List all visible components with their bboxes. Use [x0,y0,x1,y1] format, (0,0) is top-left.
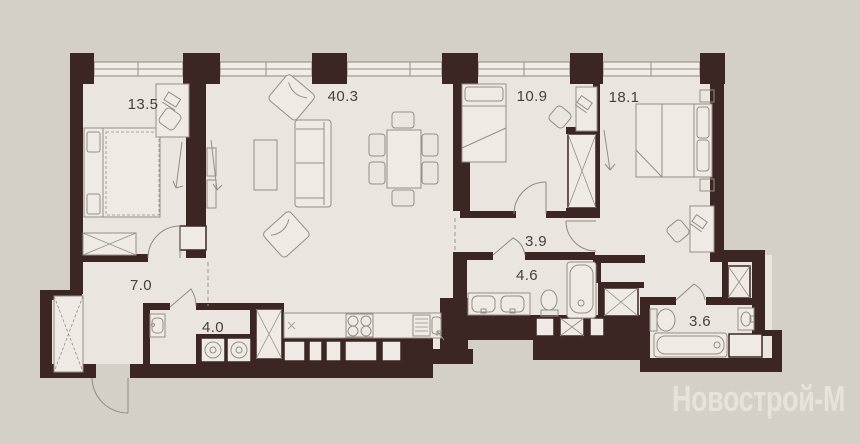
duct-shaft [590,318,604,336]
kitchen-counter-icon [284,313,444,340]
room-area-label-bedroom2: 10.9 [517,88,548,105]
hallway-furniture [54,296,83,372]
double-bed-icon [84,128,160,217]
entry-door-swing [92,378,128,413]
window [220,62,312,76]
room-area-label-bathroom2: 3.6 [689,313,711,330]
wardrobe-icon [568,134,596,208]
washing-machine-icon [227,338,251,362]
window [603,62,700,76]
room-area-label-corridor: 3.9 [525,233,547,250]
sofa-icon [295,120,331,207]
duct-shaft [536,318,554,336]
duct-shaft-x [604,288,638,316]
double-bed-icon [636,104,712,177]
desk-icon [156,84,189,137]
bathtub-icon [567,262,596,318]
wardrobe-icon [54,296,83,372]
window [478,62,570,76]
room-area-label-bathroom1: 4.6 [516,267,538,284]
room-area-label-laundry: 4.0 [202,319,224,336]
desk-icon [575,87,597,131]
wardrobe-icon [256,309,282,359]
duct-shaft [180,226,206,250]
bathroom-sink-icon [738,308,754,330]
room-area-label-hallway: 7.0 [130,277,152,294]
window [94,62,183,76]
room-area-label-living: 40.3 [328,88,359,105]
laundry-sink-icon [150,314,165,337]
duct-shaft-x [560,318,584,336]
washing-machine-icon [201,338,225,362]
floor-plan: 13.5 40.3 10.9 18.1 7.0 4.0 3.9 4.6 3.6 … [0,0,860,444]
cabinet-icon [729,334,762,357]
window [347,62,442,76]
vanity-sinks-icon [468,293,530,315]
floor-plan-drawing: 13.5 40.3 10.9 18.1 7.0 4.0 3.9 4.6 3.6 … [0,0,860,444]
single-bed-icon [462,84,506,162]
wardrobe-icon [83,233,136,255]
watermark-text: Новострой-М [672,378,845,419]
desk-icon [690,206,714,252]
bathtub-icon [654,333,727,357]
room-area-label-bedroom3: 18.1 [609,89,640,106]
duct-shaft-x [728,266,750,298]
room-area-label-bedroom1: 13.5 [128,96,159,113]
